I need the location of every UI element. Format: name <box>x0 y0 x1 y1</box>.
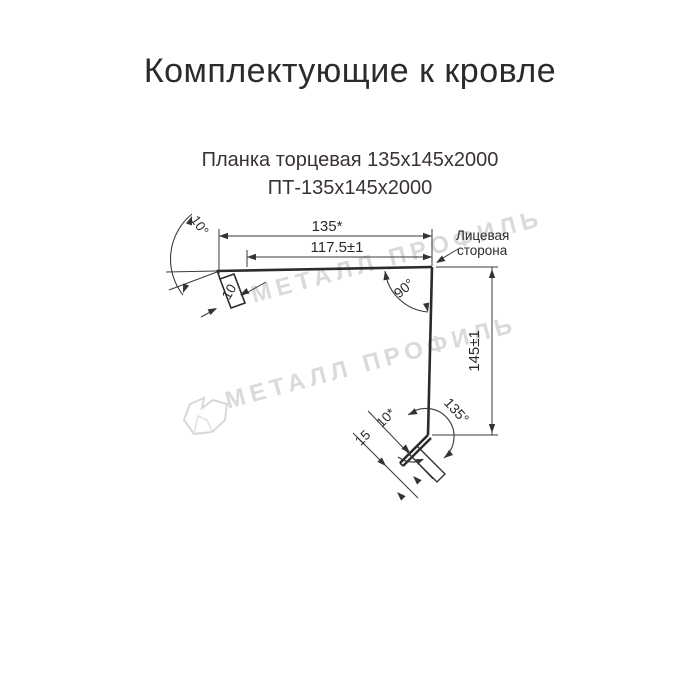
dim-label-side-height: 145±1 <box>466 330 483 372</box>
metall-profil-logo-icon <box>184 398 227 434</box>
profile-top-sheet <box>217 267 432 271</box>
arrowheads <box>180 215 495 501</box>
roofing-components-page: Комплектующие к кровле Планка торцевая 1… <box>0 0 700 700</box>
dim-label-top-width: 135* <box>312 218 343 235</box>
dim-label-corner-angle: 90° <box>391 275 418 301</box>
face-side-label-line2: сторона <box>457 243 508 258</box>
face-side-label-line1: Лицевая <box>456 228 509 243</box>
dim-label-top-bend-angle: 10° <box>188 213 212 238</box>
technical-drawing: 135* 117.5±1 10° 10 90° 145±1 135° 10* 1… <box>0 0 700 700</box>
dim-label-bottom-flange: 15 <box>352 427 373 448</box>
dim-label-bottom-bend-angle: 135° <box>441 395 472 427</box>
profile-web <box>428 267 432 435</box>
profile-bottom-hem <box>409 446 445 482</box>
dimension-labels: 135* 117.5±1 10° 10 90° 145±1 135° 10* 1… <box>188 213 510 449</box>
dim-label-top-inner-width: 117.5±1 <box>311 239 364 256</box>
arc-135deg <box>408 408 454 458</box>
dim-label-bottom-hem: 10* <box>373 405 398 430</box>
profile-outline <box>217 267 445 482</box>
